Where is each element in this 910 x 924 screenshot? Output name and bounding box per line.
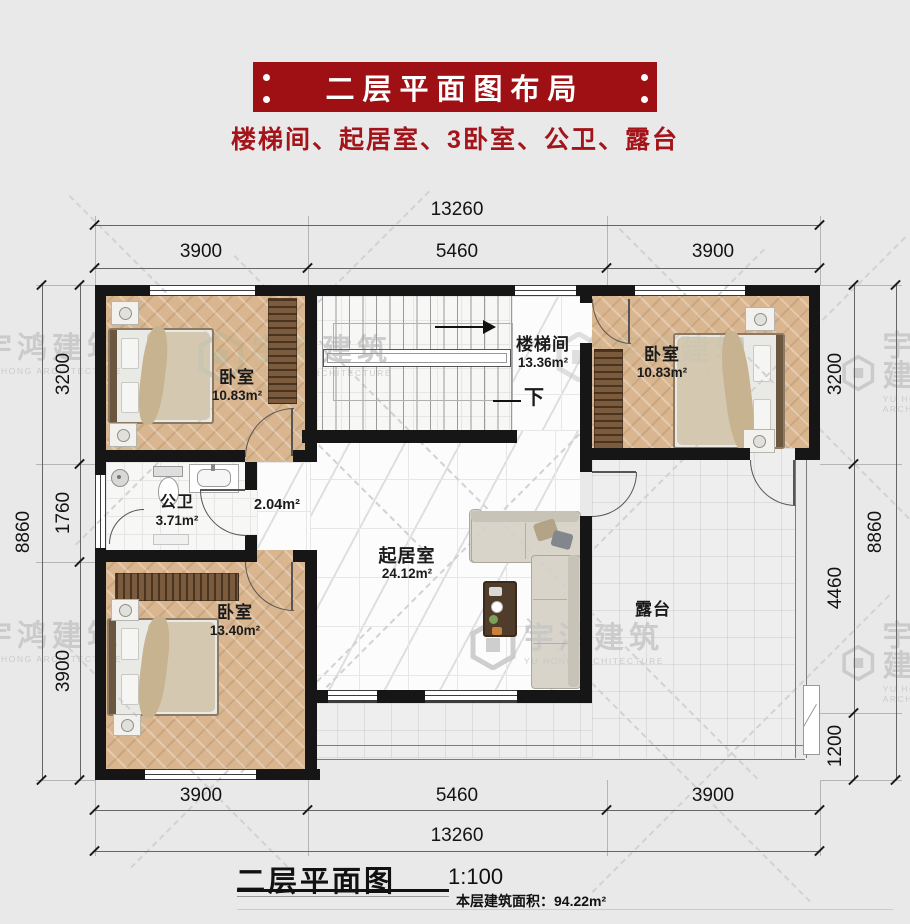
room-name: 卧室 [187, 368, 287, 388]
stairs-arrow-head [483, 320, 496, 334]
footer-baseline [237, 909, 893, 910]
dim-line-left-segments [80, 285, 81, 780]
sink-basin [197, 469, 231, 487]
footer-rule-thin [237, 896, 449, 897]
watermark: 宇鸿建筑YU HONG ARCHITECTURE [842, 332, 910, 414]
nightstand [109, 423, 137, 447]
dim-extension [95, 216, 96, 285]
living-room-label: 起居室 24.12m² [357, 546, 457, 582]
stairs-handrail [323, 349, 511, 367]
dim-line-top-total [95, 225, 820, 226]
wall [377, 690, 425, 703]
dim-line-bottom-total [95, 851, 820, 852]
toilet-tank [153, 466, 183, 477]
banner-pin-dot [641, 74, 648, 81]
room-area: 13.36m² [493, 355, 593, 371]
window [150, 285, 255, 296]
window [95, 475, 106, 548]
sofa-backrest [471, 511, 579, 522]
bath-mat [153, 534, 189, 545]
dim-extension [36, 780, 95, 781]
window [515, 285, 576, 296]
nightstand [111, 301, 139, 325]
dim-extension [820, 216, 821, 285]
wall [106, 450, 245, 462]
table-plant [489, 615, 498, 624]
door-leaf [628, 299, 630, 343]
dim-extension [308, 780, 309, 856]
hallway-area-label: 2.04m² [237, 497, 317, 513]
room-name: 卧室 [185, 603, 285, 623]
page-title: 二层平面图布局 [325, 66, 584, 108]
dim-extension [820, 464, 902, 465]
watermark-logo-icon [842, 348, 875, 398]
stairs-down-line [493, 400, 521, 402]
wall [795, 448, 820, 460]
floor-plan: 卧室 10.83m² 楼梯间 13.36m² 下 卧室 10.83m² 公卫 3… [95, 285, 820, 780]
dim-label-right-seg: 1200 [826, 686, 846, 806]
wall [580, 516, 592, 703]
terrace-label: 露台 [613, 600, 693, 620]
wall [302, 430, 517, 443]
stairs-down-label: 下 [520, 381, 548, 410]
dim-extension [607, 780, 608, 856]
wall [580, 296, 592, 303]
dim-label-right-total: 8860 [866, 472, 886, 592]
room-name: 露台 [613, 600, 693, 620]
table-plate [491, 601, 503, 613]
shower-head-center [117, 475, 121, 479]
stairwell-label: 楼梯间 13.36m² [493, 335, 593, 371]
wall [293, 450, 317, 462]
floor-plan-page: 二层平面图布局 楼梯间、起居室、3卧室、公卫、露台 [0, 0, 910, 924]
dim-line-top-segments [95, 268, 820, 269]
stairs-direction-arrow [435, 326, 485, 328]
dim-extension [36, 285, 95, 286]
page-subtitle: 楼梯间、起居室、3卧室、公卫、露台 [0, 120, 910, 156]
wall [580, 460, 592, 472]
footer-rule-thick [237, 889, 449, 892]
wall [245, 462, 257, 490]
dim-label-bottom-seg: 3900 [653, 786, 773, 806]
nightstand [745, 307, 775, 331]
room-name: 卧室 [612, 345, 712, 365]
sink-faucet [211, 464, 215, 471]
banner-pin-dot [641, 96, 648, 103]
footer-scale: 1:100 [448, 864, 503, 890]
dim-label-top-seg: 5460 [397, 242, 517, 262]
bedroom-bl-label: 卧室 13.40m² [185, 603, 285, 639]
sofa-cushion-line [533, 599, 567, 600]
dim-line-bottom-segments [95, 810, 820, 811]
dim-extension [95, 780, 96, 856]
dim-label-right-seg: 4460 [826, 528, 846, 648]
dim-line-right-segments [854, 285, 855, 780]
dim-extension [308, 216, 309, 285]
footer-plan-title: 二层平面图 [236, 858, 396, 900]
window [635, 285, 745, 296]
dim-label-top-seg: 3900 [141, 242, 261, 262]
footer-floor-area: 本层建筑面积：94.22m² [456, 891, 606, 911]
door-leaf [793, 460, 795, 505]
nightstand [111, 599, 139, 621]
window [328, 690, 377, 703]
dim-extension [820, 285, 902, 286]
wall [310, 690, 328, 703]
room-area: 10.83m² [612, 365, 712, 381]
table-tray [489, 587, 502, 596]
sofa-cushion-line [525, 523, 526, 559]
nightstand [113, 714, 141, 736]
door-leaf [291, 562, 293, 610]
watermark: 宇鸿建筑YU HONG ARCHITECTURE [842, 622, 910, 704]
table-snack [492, 627, 502, 635]
dim-line-left-total [42, 285, 43, 780]
dim-line-right-total [896, 285, 897, 780]
wall [580, 448, 750, 460]
bedroom-tl-label: 卧室 10.83m² [187, 368, 287, 404]
door-leaf [592, 471, 636, 473]
banner-pin-dot [263, 96, 270, 103]
dim-label-top-total: 13260 [397, 200, 517, 220]
terrace-railing [310, 745, 805, 760]
window [425, 690, 517, 703]
door-leaf [200, 489, 245, 491]
window [145, 769, 256, 780]
sofa-cushion-line [533, 643, 567, 644]
wall [809, 285, 820, 448]
wall [305, 550, 317, 769]
title-banner: 二层平面图布局 [253, 62, 657, 112]
dim-label-bottom-total: 13260 [397, 826, 517, 846]
room-name: 起居室 [357, 546, 457, 566]
dim-label-bottom-seg: 5460 [397, 786, 517, 806]
door-leaf [291, 408, 293, 456]
banner-pin-dot [263, 74, 270, 81]
dim-label-left-seg: 3200 [54, 314, 74, 434]
room-area: 10.83m² [187, 388, 287, 404]
bedroom-tr-label: 卧室 10.83m² [612, 345, 712, 381]
dim-extension [607, 216, 608, 285]
watermark-logo-icon [842, 638, 875, 688]
sofa-backrest [568, 555, 579, 687]
wall [106, 550, 245, 562]
room-area: 3.71m² [133, 513, 221, 529]
dim-label-left-total: 8860 [14, 472, 34, 592]
room-name: 楼梯间 [493, 335, 593, 355]
bathroom-label: 公卫 3.71m² [133, 493, 221, 529]
room-area: 13.40m² [185, 623, 285, 639]
dim-label-left-seg: 1760 [54, 453, 74, 573]
room-name: 公卫 [133, 493, 221, 513]
wall [245, 535, 257, 562]
wardrobe [115, 573, 239, 601]
room-area: 24.12m² [357, 566, 457, 582]
dim-label-right-seg: 3200 [826, 314, 846, 434]
dim-label-left-seg: 3900 [54, 611, 74, 731]
dim-label-top-seg: 3900 [653, 242, 773, 262]
dim-label-bottom-seg: 3900 [141, 786, 261, 806]
dim-extension [820, 780, 821, 856]
